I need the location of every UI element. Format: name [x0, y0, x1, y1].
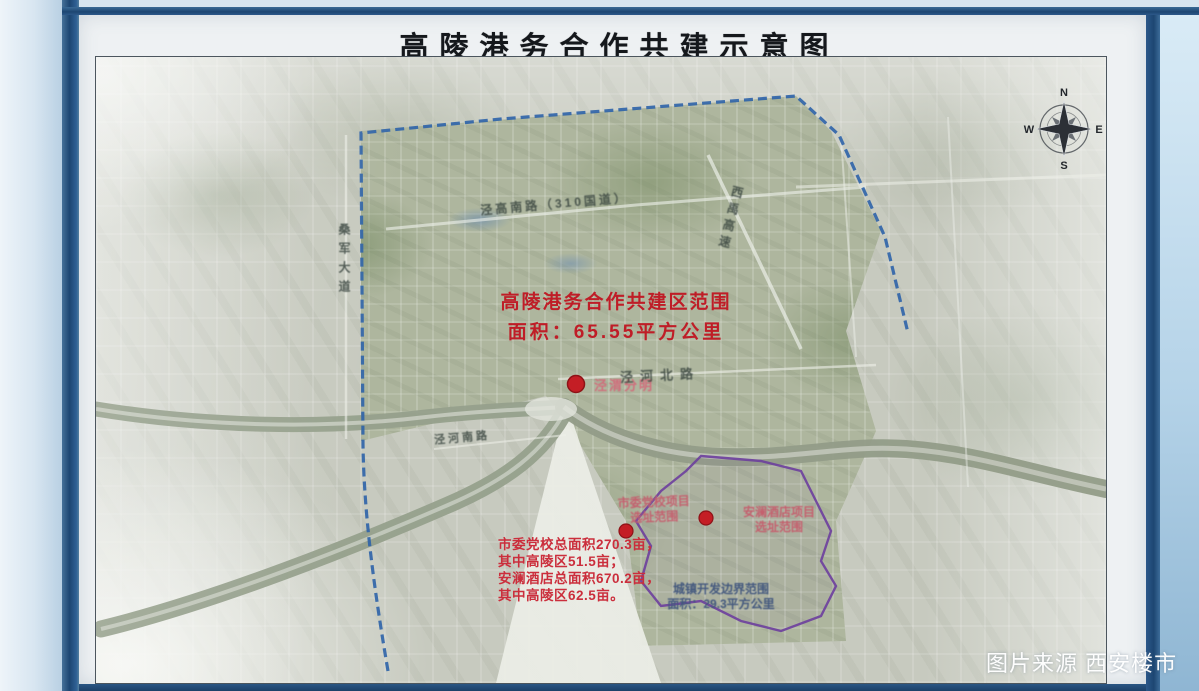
party-school-label: 市委党校项目 选址范围 [594, 493, 715, 527]
zone-area-callout: 高陵港务合作共建区范围 面积：65.55平方公里 [444, 287, 788, 344]
photographed-map-board: 高陵港务合作共建示意图 [0, 0, 1199, 691]
development-boundary-line1: 城镇开发边界范围 [636, 582, 806, 597]
frame-bottom-bar [79, 684, 1146, 691]
zone-callout-line1: 高陵港务合作共建区范围 [444, 287, 788, 314]
frame-left-bar [62, 0, 79, 691]
anlan-hotel-label-line2: 选址范围 [714, 520, 844, 535]
satellite-map: N S W E 高陵港务合作共建区范围 面积：65.55平方公里 泾渭分明 市委… [95, 56, 1107, 684]
frame-top-bar [62, 7, 1199, 15]
notes-line1: 市委党校总面积270.3亩， [498, 536, 660, 553]
anlan-hotel-label-line1: 安澜酒店项目 [714, 505, 844, 520]
compass-south-label: S [1060, 160, 1067, 171]
zone-callout-line2: 面积：65.55平方公里 [444, 317, 788, 344]
development-boundary-callout: 城镇开发边界范围 面积：29.3平方公里 [636, 582, 806, 612]
anlan-hotel-label: 安澜酒店项目 选址范围 [714, 505, 844, 535]
road-label-sangjun-avenue: 桑军大道 [336, 223, 353, 299]
compass-main-star [1036, 101, 1092, 157]
road-east-north-south [948, 117, 968, 487]
photo-edge-right [1160, 15, 1199, 691]
compass-rose: N S W E [1021, 85, 1107, 171]
frame-right-bar [1146, 15, 1160, 691]
compass-east-label: E [1095, 124, 1102, 136]
river-confluence-sandbar [525, 397, 577, 421]
compass-north-label: N [1060, 87, 1068, 99]
jingwei-confluence-marker [568, 376, 585, 393]
development-boundary-line2: 面积：29.3平方公里 [636, 597, 806, 612]
photo-edge-left [0, 0, 62, 691]
compass-west-label: W [1024, 124, 1035, 136]
photo-edge-top [62, 0, 1199, 7]
source-watermark: 图片来源 西安楼市 [986, 646, 1177, 678]
notes-line2: 其中高陵区51.5亩； [498, 553, 660, 570]
